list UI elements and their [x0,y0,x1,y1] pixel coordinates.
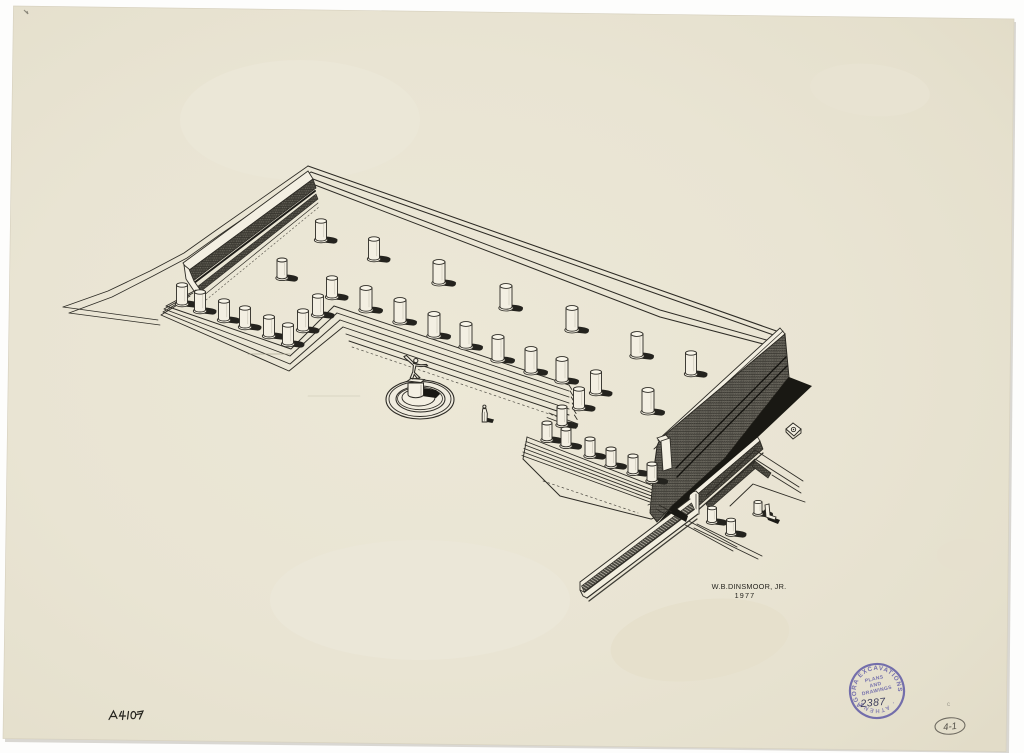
svg-text:4-1: 4-1 [943,721,958,733]
svg-text:c: c [947,702,950,708]
svg-text:1977: 1977 [735,591,756,600]
svg-text:2387: 2387 [859,696,887,710]
svg-text:W.B.DINSMOOR, JR.: W.B.DINSMOOR, JR. [712,582,787,591]
